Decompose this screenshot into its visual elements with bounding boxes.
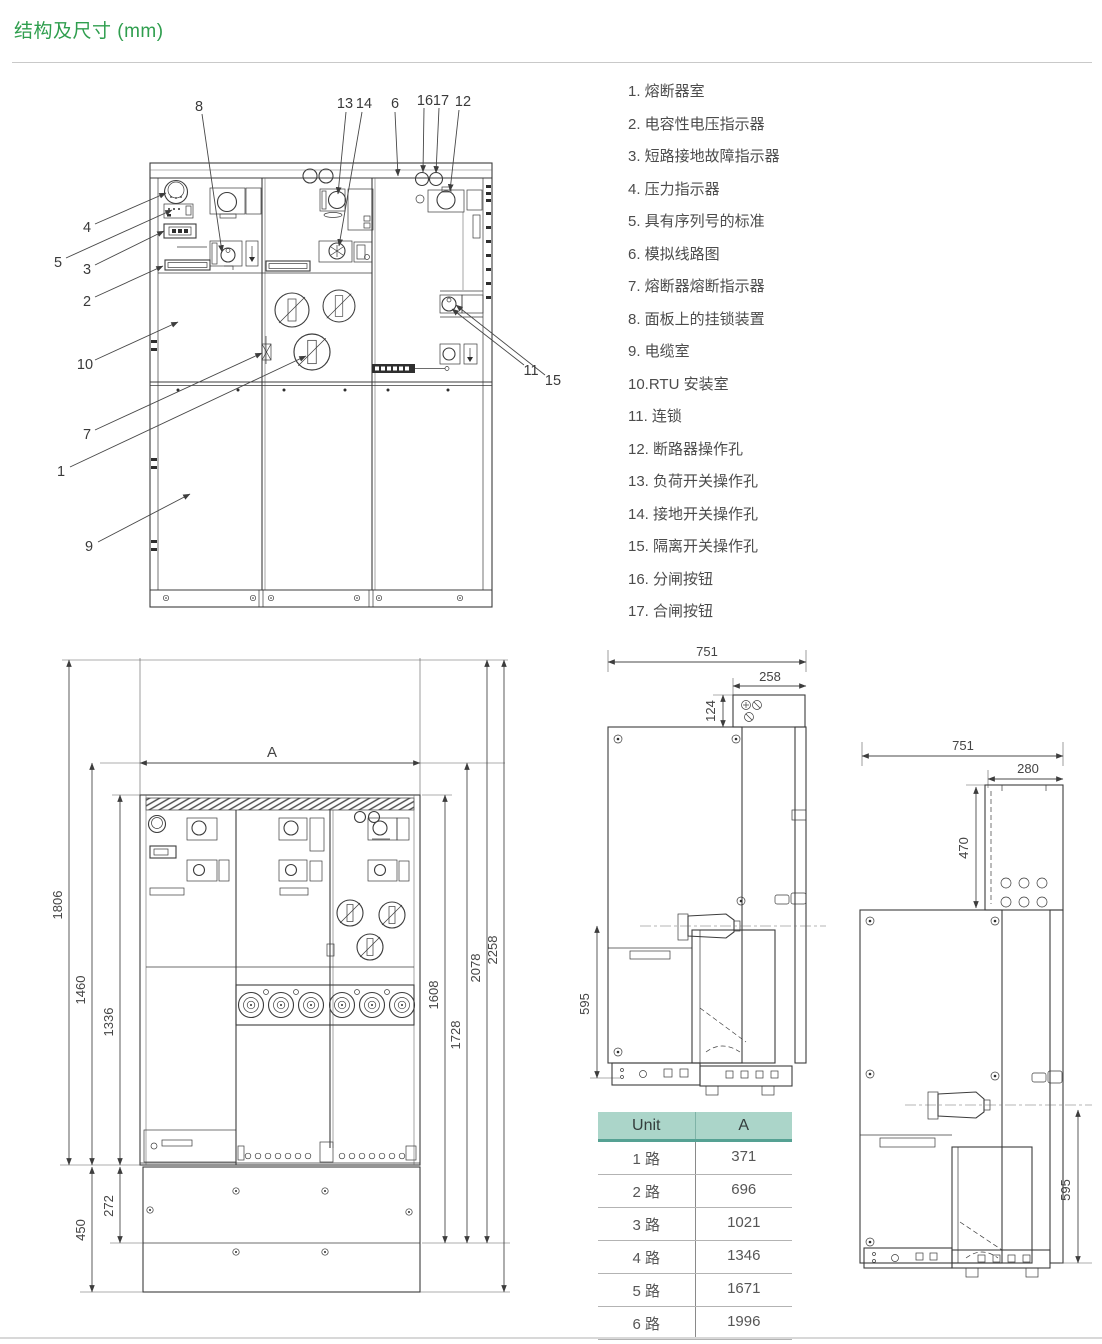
dimension-labels: A 1806 1460 1336 272 450 1608 1728 2078 … xyxy=(50,744,500,1241)
page: { "page": { "title": "结构及尺寸 (mm)" }, "co… xyxy=(0,0,1102,1344)
dim-2078: 2078 xyxy=(468,954,483,983)
callout-13: 13 xyxy=(337,96,353,112)
callout-15: 15 xyxy=(545,373,561,389)
cabinet-outline xyxy=(150,163,492,607)
callout-4: 4 xyxy=(83,220,91,236)
spec-table-header: Unit A xyxy=(598,1112,792,1142)
dim-side1-751: 751 xyxy=(696,644,718,659)
dim-272: 272 xyxy=(101,1195,116,1217)
side-view-right-labels: 751 280 470 595 xyxy=(952,738,1073,1201)
terminal-row xyxy=(245,1153,405,1159)
dim-1728: 1728 xyxy=(448,1021,463,1050)
dim-side2-751: 751 xyxy=(952,738,974,753)
dim-side2-470: 470 xyxy=(956,837,971,859)
legend-item: 6. 模拟线路图 xyxy=(628,245,858,264)
dim-label-A: A xyxy=(267,744,277,761)
front-panel-drawing: 8 13 14 6 16 17 12 4 5 3 2 10 7 1 9 11 1… xyxy=(30,80,600,640)
callout-9: 9 xyxy=(85,539,93,555)
legend-item: 10.RTU 安装室 xyxy=(628,375,858,394)
table-header-unit: Unit xyxy=(598,1112,695,1139)
legend-item: 8. 面板上的挂锁装置 xyxy=(628,310,858,329)
dim-side2-595: 595 xyxy=(1058,1179,1073,1201)
dim-1806: 1806 xyxy=(50,891,65,920)
dim-1336: 1336 xyxy=(101,1008,116,1037)
dim-side2-280: 280 xyxy=(1017,761,1039,776)
legend-item: 16. 分闸按钮 xyxy=(628,570,858,589)
table-cell-unit: 4 路 xyxy=(598,1241,695,1273)
cabinet-structure xyxy=(140,795,420,1165)
legend-item: 11. 连锁 xyxy=(628,407,858,426)
callout-3: 3 xyxy=(83,262,91,278)
table-row: 4 路 1346 xyxy=(598,1241,792,1274)
dim-450: 450 xyxy=(73,1219,88,1241)
table-row: 2 路 696 xyxy=(598,1175,792,1208)
table-cell-unit: 5 路 xyxy=(598,1274,695,1306)
callout-numbers: 8 13 14 6 16 17 12 4 5 3 2 10 7 1 9 11 1… xyxy=(54,93,561,555)
table-cell-a: 1346 xyxy=(695,1241,793,1273)
callout-14: 14 xyxy=(356,96,372,112)
callout-2: 2 xyxy=(83,294,91,310)
callout-16: 16 xyxy=(417,93,433,109)
table-row: 3 路 1021 xyxy=(598,1208,792,1241)
page-bottom-divider xyxy=(0,1337,1102,1339)
plinth-structure xyxy=(143,1167,420,1292)
dim-1608: 1608 xyxy=(426,981,441,1010)
legend-item: 13. 负荷开关操作孔 xyxy=(628,472,858,491)
dim-2258: 2258 xyxy=(485,936,500,965)
table-row: 6 路 1996 xyxy=(598,1307,792,1340)
table-cell-unit: 2 路 xyxy=(598,1175,695,1207)
callout-11: 11 xyxy=(523,363,538,379)
table-cell-a: 1996 xyxy=(695,1307,793,1339)
legend-item: 7. 熔断器熔断指示器 xyxy=(628,277,858,296)
page-title: 结构及尺寸 (mm) xyxy=(14,16,164,43)
callout-10: 10 xyxy=(77,357,93,373)
legend-list: 1. 熔断器室 2. 电容性电压指示器 3. 短路接地故障指示器 4. 压力指示… xyxy=(628,82,858,635)
legend-item: 17. 合闸按钮 xyxy=(628,602,858,621)
dim-side1-124: 124 xyxy=(703,700,718,722)
table-cell-a: 1021 xyxy=(695,1208,793,1240)
callout-12: 12 xyxy=(455,94,471,110)
dim-side1-595: 595 xyxy=(577,993,592,1015)
callout-1: 1 xyxy=(57,464,65,480)
legend-item: 2. 电容性电压指示器 xyxy=(628,115,858,134)
callout-6: 6 xyxy=(391,96,399,112)
dim-side1-258: 258 xyxy=(759,669,781,684)
table-cell-a: 1671 xyxy=(695,1274,793,1306)
table-cell-unit: 1 路 xyxy=(598,1142,695,1174)
callout-leader-lines xyxy=(66,108,545,542)
legend-item: 14. 接地开关操作孔 xyxy=(628,505,858,524)
callout-17: 17 xyxy=(433,93,449,109)
legend-item: 4. 压力指示器 xyxy=(628,180,858,199)
table-cell-a: 371 xyxy=(695,1142,793,1174)
dimension-lines xyxy=(60,658,510,1292)
table-header-a: A xyxy=(695,1112,793,1139)
dimensioned-front-view: A 1806 1460 1336 272 450 1608 1728 2078 … xyxy=(40,645,520,1305)
spec-table: Unit A 1 路 371 2 路 696 3 路 1021 4 路 1346… xyxy=(598,1112,792,1340)
legend-item: 15. 隔离开关操作孔 xyxy=(628,537,858,556)
legend-item: 9. 电缆室 xyxy=(628,342,858,361)
table-cell-unit: 3 路 xyxy=(598,1208,695,1240)
panel-devices xyxy=(163,169,491,601)
table-row: 5 路 1671 xyxy=(598,1274,792,1307)
callout-7: 7 xyxy=(83,427,91,443)
legend-item: 1. 熔断器室 xyxy=(628,82,858,101)
table-cell-a: 696 xyxy=(695,1175,793,1207)
legend-item: 12. 断路器操作孔 xyxy=(628,440,858,459)
title-divider xyxy=(12,62,1092,63)
legend-item: 5. 具有序列号的标准 xyxy=(628,212,858,231)
callout-5: 5 xyxy=(54,255,62,271)
table-row: 1 路 371 xyxy=(598,1142,792,1175)
dim-1460: 1460 xyxy=(73,976,88,1005)
legend-item: 3. 短路接地故障指示器 xyxy=(628,147,858,166)
callout-8: 8 xyxy=(195,99,203,115)
table-cell-unit: 6 路 xyxy=(598,1307,695,1339)
